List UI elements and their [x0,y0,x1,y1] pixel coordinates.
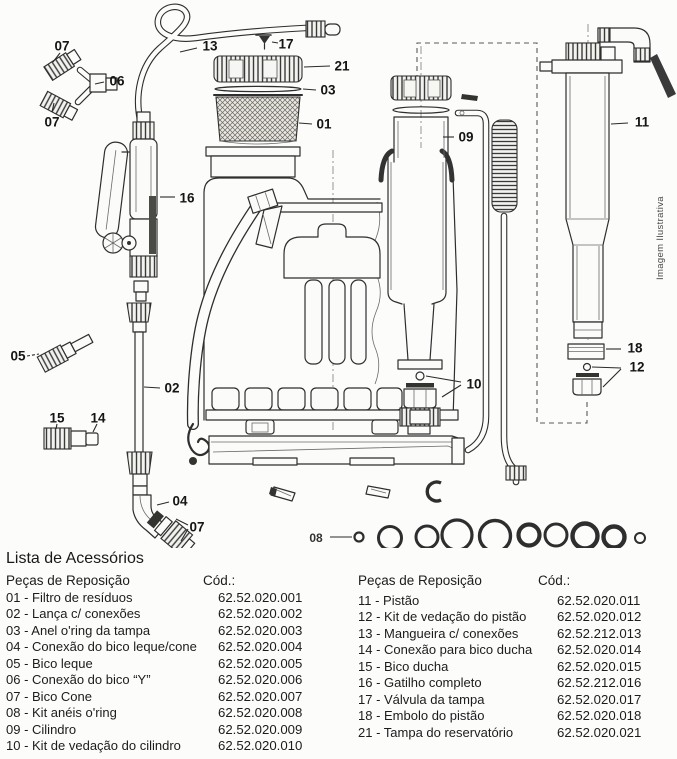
callout-04: 04 [172,494,188,509]
part-code: 62.52.020.008 [218,705,302,721]
callout-02: 02 [164,381,179,396]
parts-list-item: 08 - Kit anéis o'ring62.52.020.008 [6,705,342,721]
header-parts: Peças de Reposição [6,573,203,589]
part-code: 62.52.020.006 [218,672,302,688]
leader-01 [299,123,312,124]
parts-list-item: 21 - Tampa do reservatório62.52.020.021 [358,725,674,741]
part-code: 62.52.212.013 [557,626,641,642]
callout-12: 12 [629,360,644,375]
part-code: 62.52.020.021 [557,725,641,741]
part-code: 62.52.020.010 [218,738,302,754]
parts-list-item: 14 - Conexão para bico ducha62.52.020.01… [358,642,674,658]
part-name: 18 - Embolo do pistão [358,708,557,724]
parts-list-left: Peças de Reposição Cód.: 01 - Filtro de … [6,573,342,754]
part-pump-lever-rod [458,111,486,450]
part-pins-and-clip [269,482,441,501]
callout-15: 15 [49,411,65,426]
small-pin-icon [461,94,478,101]
parts-list-item: 18 - Embolo do pistão62.52.020.018 [358,708,674,724]
part-name: 07 - Bico Cone [6,689,218,705]
product-diagram-page: 07 06 07 13 17 21 03 01 09 11 16 05 02 1… [0,0,677,759]
callout-21: 21 [334,59,350,74]
callout-10: 10 [466,377,481,392]
callout-03: 03 [320,83,336,98]
callout-09: 09 [458,130,473,145]
callout-01: 01 [316,117,332,132]
parts-list-item: 05 - Bico leque62.52.020.005 [6,656,342,672]
sprayer-exploded-diagram: 07 06 07 13 17 21 03 01 09 11 16 05 02 1… [0,0,677,548]
part-name: 15 - Bico ducha [358,659,557,675]
part-shower-nozzle-15 [44,428,71,449]
leader-13 [180,48,197,52]
part-code: 62.52.020.002 [218,606,302,622]
part-name: 14 - Conexão para bico ducha [358,642,557,658]
part-name: 13 - Mangueira c/ conexões [358,626,557,642]
part-grip-rod [492,120,526,482]
callout-13: 13 [202,39,218,54]
parts-list-item: 16 - Gatilho completo62.52.212.016 [358,675,674,691]
part-name: 06 - Conexão do bico “Y” [6,672,218,688]
part-name: 12 - Kit de vedação do pistão [358,609,557,625]
part-code: 62.52.020.014 [557,642,641,658]
part-name: 11 - Pistão [358,593,557,609]
parts-list-left-header: Peças de Reposição Cód.: [6,573,342,590]
part-code: 62.52.020.018 [557,708,641,724]
part-connector-14 [71,431,98,446]
parts-list-right-header: Peças de Reposição Cód.: [358,573,674,590]
callout-06: 06 [109,74,125,89]
leader-04 [157,502,169,505]
parts-list-item: 17 - Válvula da tampa62.52.020.017 [358,692,674,708]
part-name: 08 - Kit anéis o'ring [6,705,218,721]
parts-list-item: 10 - Kit de vedação do cilindro62.52.020… [6,738,342,754]
part-piston-11 [540,28,676,338]
watermark-text: Imagem Ilustrativa [655,196,666,280]
part-piston-seal-kit-12 [573,364,601,396]
parts-list-item: 09 - Cilindro62.52.020.009 [6,722,342,738]
parts-list-item: 11 - Pistão62.52.020.011 [358,593,674,609]
leader-21 [304,66,330,67]
part-code: 62.52.212.016 [557,675,641,691]
part-code: 62.52.020.009 [218,722,302,738]
header-parts: Peças de Reposição [358,573,538,589]
part-name: 09 - Cilindro [6,722,218,738]
part-pump-housing [381,151,452,369]
part-code: 62.52.020.004 [218,639,302,655]
part-filter-01 [214,95,302,144]
parts-list-item: 06 - Conexão do bico “Y”62.52.020.006 [6,672,342,688]
part-oring-kit-08 [330,520,645,548]
part-code: 62.52.020.017 [557,692,641,708]
callout-07-left: 07 [44,115,59,130]
part-name: 05 - Bico leque [6,656,218,672]
part-code: 62.52.020.005 [218,656,302,672]
leader-05 [27,354,39,356]
part-name: 02 - Lança c/ conexões [6,606,218,622]
callout-17: 17 [278,37,293,52]
part-y-connector-06 [40,48,117,122]
callout-07-top: 07 [54,39,69,54]
part-code: 62.52.020.015 [557,659,641,675]
parts-list-item: 07 - Bico Cone62.52.020.007 [6,689,342,705]
callout-18: 18 [627,341,643,356]
header-code: Cód.: [538,573,570,589]
leader-11 [611,123,628,124]
leader-17 [272,42,278,43]
part-lever-bar [209,436,464,465]
part-name: 21 - Tampa do reservatório [358,725,557,741]
callout-05: 05 [10,349,26,364]
parts-list-item: 15 - Bico ducha62.52.020.015 [358,659,674,675]
part-code: 62.52.020.003 [218,623,302,639]
part-code: 62.52.020.007 [218,689,302,705]
part-cap-valve-17 [256,35,271,49]
leader-02 [144,387,160,388]
part-trigger-16 [94,112,157,301]
part-name: 01 - Filtro de resíduos [6,590,218,606]
part-name: 16 - Gatilho completo [358,675,557,691]
part-cylinder-seal-kit-10 [400,372,440,426]
callout-07-bottom: 07 [189,520,204,535]
part-code: 62.52.020.001 [218,590,302,606]
part-code: 62.52.020.012 [557,609,641,625]
parts-list-item: 04 - Conexão do bico leque/cone62.52.020… [6,639,342,655]
part-name: 03 - Anel o'ring da tampa [6,623,218,639]
header-code: Cód.: [203,573,235,589]
part-fan-nozzle-05 [37,331,94,372]
parts-list-item: 13 - Mangueira c/ conexões62.52.212.013 [358,626,674,642]
part-lance-02 [127,303,152,495]
parts-list-item: 02 - Lança c/ conexões62.52.020.002 [6,606,342,622]
parts-list-right: Peças de Reposição Cód.: 11 - Pistão62.5… [358,573,674,741]
leader-03 [303,89,316,90]
part-name: 17 - Válvula da tampa [358,692,557,708]
part-cap-oring-03 [215,86,301,91]
part-name: 04 - Conexão do bico leque/cone [6,639,218,655]
callout-11: 11 [635,115,650,130]
parts-list-item: 03 - Anel o'ring da tampa62.52.020.003 [6,623,342,639]
callout-14: 14 [90,411,106,426]
callout-08: 08 [309,531,323,545]
parts-list-item: 01 - Filtro de resíduos62.52.020.001 [6,590,342,606]
part-plunger-18 [568,344,604,359]
list-title: Lista de Acessórios [6,550,144,568]
callout-16: 16 [179,191,195,206]
parts-list-item: 12 - Kit de vedação do pistão62.52.020.0… [358,609,674,625]
part-code: 62.52.020.011 [557,593,640,609]
part-name: 10 - Kit de vedação do cilindro [6,738,218,754]
part-cap-21 [214,56,302,82]
